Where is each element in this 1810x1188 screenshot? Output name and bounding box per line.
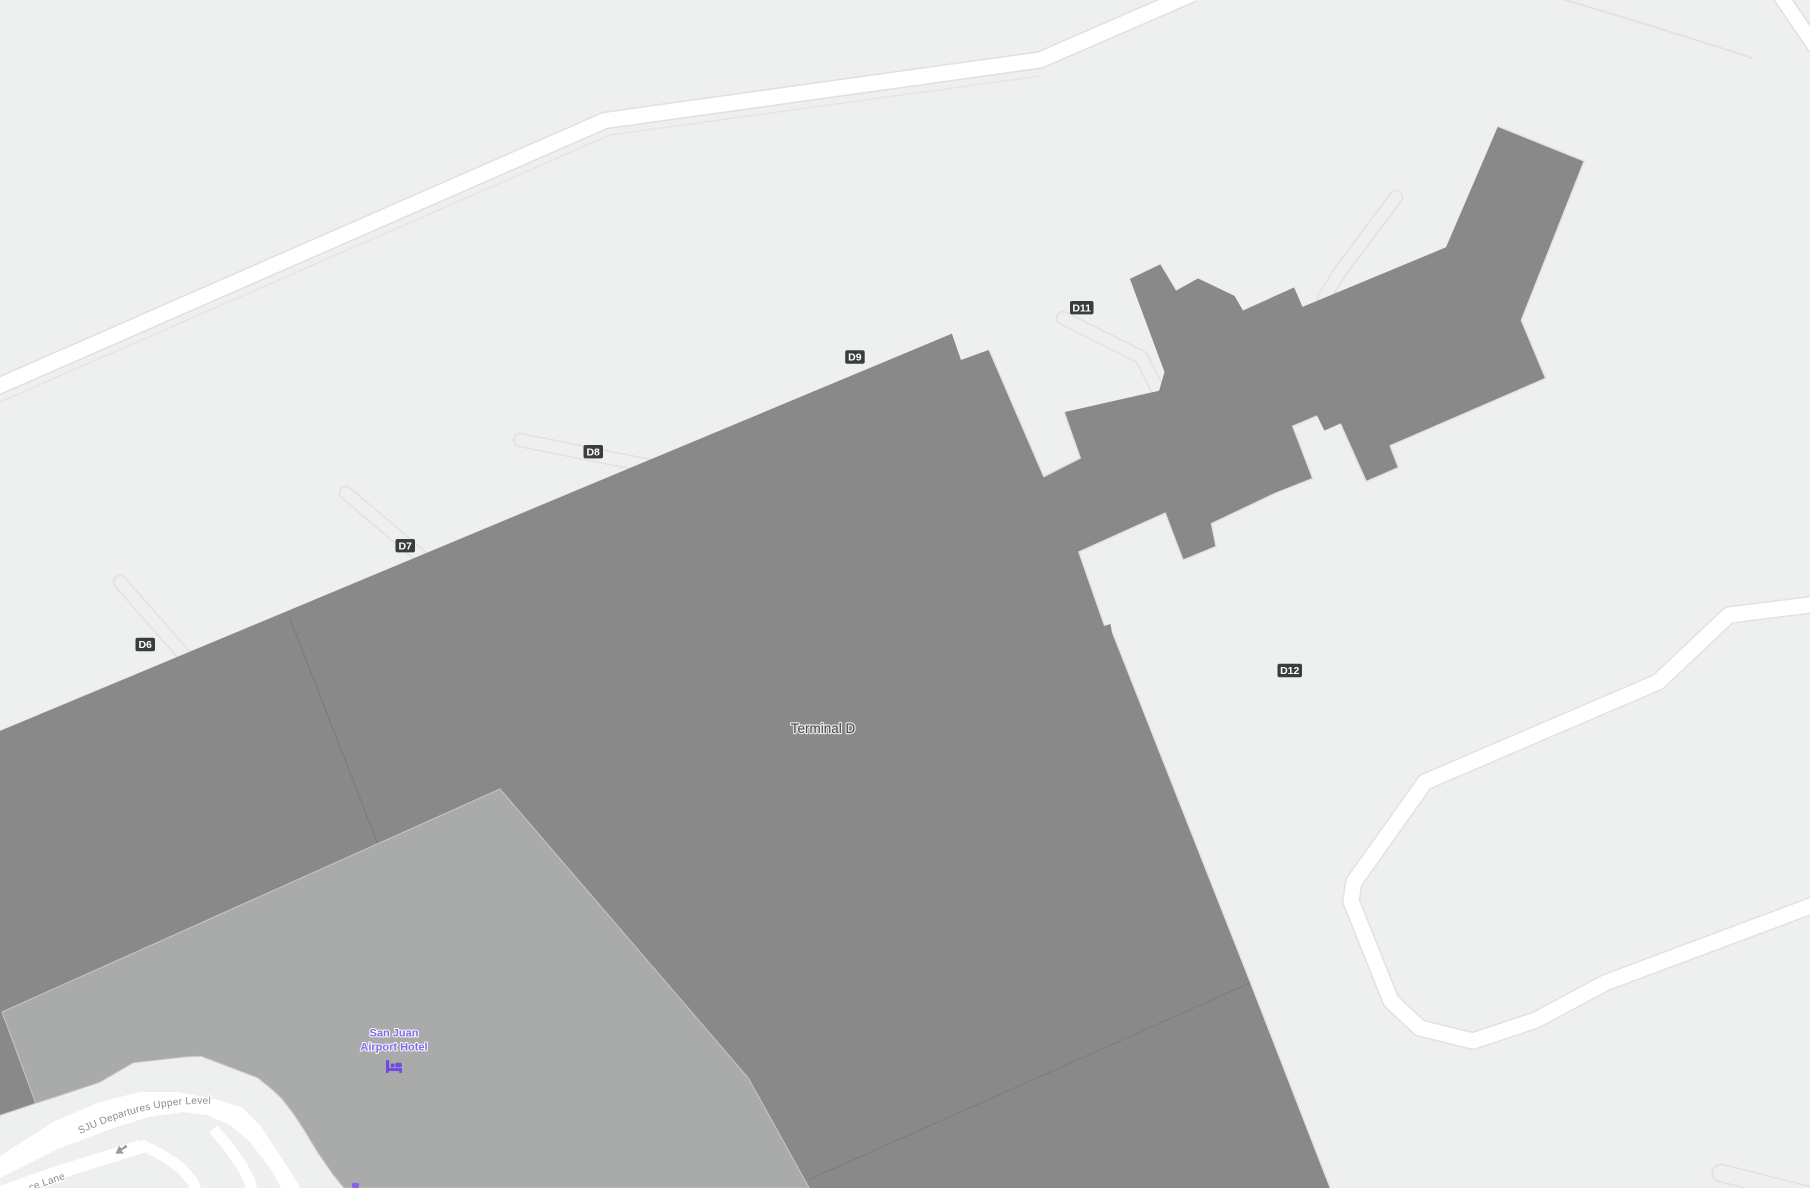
- svg-text:Terminal D: Terminal D: [791, 721, 856, 736]
- svg-text:D12: D12: [1280, 665, 1299, 677]
- svg-text:San Juan: San Juan: [370, 1028, 419, 1040]
- svg-text:D8: D8: [586, 446, 600, 458]
- svg-text:D11: D11: [1072, 302, 1091, 314]
- svg-text:D9: D9: [848, 352, 862, 364]
- svg-text:D7: D7: [398, 540, 412, 552]
- svg-text:D6: D6: [138, 639, 152, 651]
- svg-text:Airport Hotel: Airport Hotel: [360, 1042, 427, 1054]
